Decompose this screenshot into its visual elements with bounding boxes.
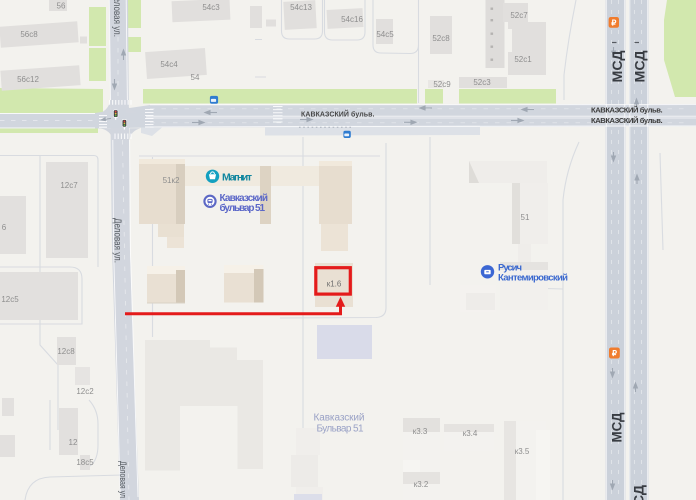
- svg-text:12с8: 12с8: [57, 347, 75, 356]
- svg-text:МСД: МСД: [632, 50, 648, 82]
- svg-text:к1.6: к1.6: [327, 280, 342, 289]
- svg-text:к3.5: к3.5: [515, 447, 530, 456]
- svg-text:52с9: 52с9: [433, 80, 451, 89]
- svg-text:51: 51: [521, 213, 530, 222]
- svg-text:56с12: 56с12: [17, 75, 39, 84]
- svg-text:54с16: 54с16: [341, 15, 363, 24]
- svg-text:54с4: 54с4: [160, 60, 178, 69]
- svg-text:52с1: 52с1: [514, 55, 532, 64]
- svg-text:КАВКАЗСКИЙ бульв.: КАВКАЗСКИЙ бульв.: [591, 116, 663, 125]
- svg-text:Кавказский: Кавказский: [314, 413, 365, 424]
- svg-text:МСД: МСД: [609, 412, 625, 442]
- svg-text:₽: ₽: [612, 349, 617, 358]
- svg-text:12: 12: [69, 438, 78, 447]
- svg-text:МСД: МСД: [631, 485, 647, 500]
- svg-text:54с5: 54с5: [376, 30, 394, 39]
- svg-text:КАВКАЗСКИЙ бульв.: КАВКАЗСКИЙ бульв.: [591, 105, 663, 114]
- svg-text:Деловая ул.: Деловая ул.: [111, 0, 122, 37]
- svg-text:бульвар 51: бульвар 51: [220, 202, 266, 214]
- svg-text:54с13: 54с13: [290, 3, 312, 12]
- svg-text:КАВКАЗСКИЙ бульв.: КАВКАЗСКИЙ бульв.: [301, 110, 375, 119]
- svg-text:Деловая ул: Деловая ул: [118, 461, 128, 498]
- svg-text:₽: ₽: [611, 19, 616, 28]
- svg-text:52с3: 52с3: [473, 78, 491, 87]
- svg-text:54: 54: [191, 73, 200, 82]
- svg-text:к3.2: к3.2: [414, 480, 429, 489]
- svg-text:18с5: 18с5: [76, 458, 94, 467]
- svg-text:54с3: 54с3: [202, 3, 220, 12]
- svg-text:56с8: 56с8: [20, 30, 38, 39]
- svg-text:к3.4: к3.4: [463, 429, 478, 438]
- svg-text:12с7: 12с7: [60, 181, 78, 190]
- svg-text:12с5: 12с5: [1, 295, 19, 304]
- svg-text:Деловая ул.: Деловая ул.: [112, 218, 123, 263]
- svg-text:12с2: 12с2: [76, 387, 94, 396]
- svg-text:Бульвар 51: Бульвар 51: [317, 424, 364, 435]
- svg-text:к3.3: к3.3: [413, 427, 428, 436]
- svg-text:56: 56: [57, 2, 66, 11]
- svg-text:Кантемировский: Кантемировский: [498, 272, 568, 283]
- svg-text:МСД: МСД: [609, 50, 625, 82]
- svg-text:52с8: 52с8: [432, 34, 450, 43]
- svg-text:Магнит: Магнит: [222, 172, 252, 184]
- svg-text:51к2: 51к2: [163, 176, 180, 185]
- svg-text:52с7: 52с7: [510, 11, 528, 20]
- svg-text:6: 6: [2, 223, 7, 232]
